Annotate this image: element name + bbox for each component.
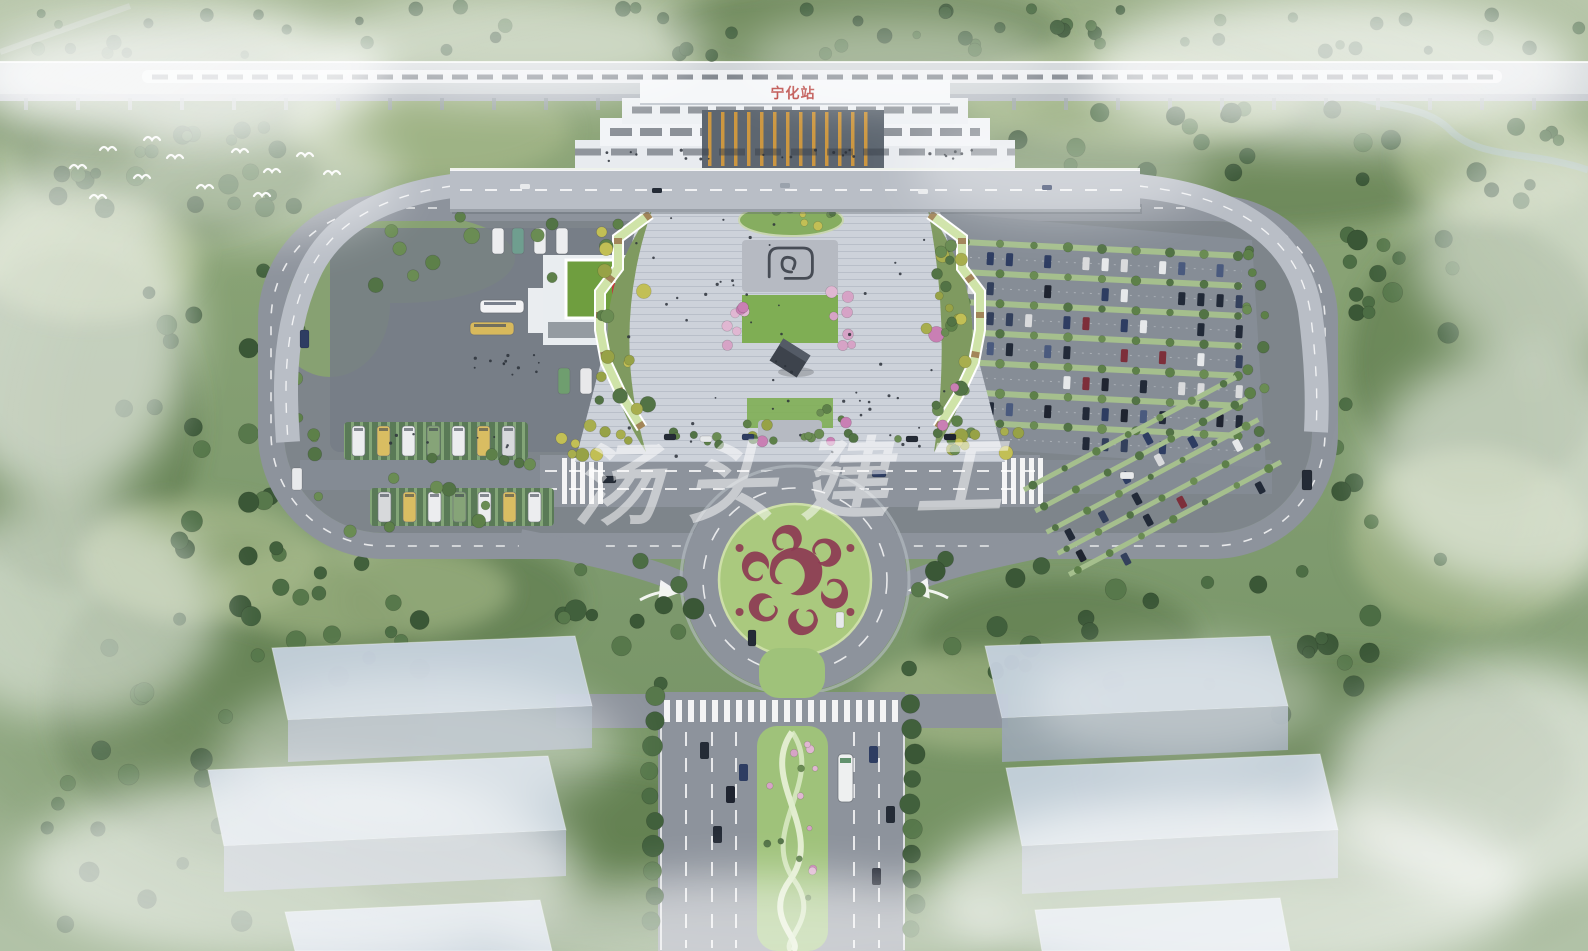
aerial-rendering-scene: 宁化站 [0,0,1588,951]
rendering-canvas: 宁化站 [0,0,1588,951]
watermark-text: 汤头建工 [571,423,1030,539]
